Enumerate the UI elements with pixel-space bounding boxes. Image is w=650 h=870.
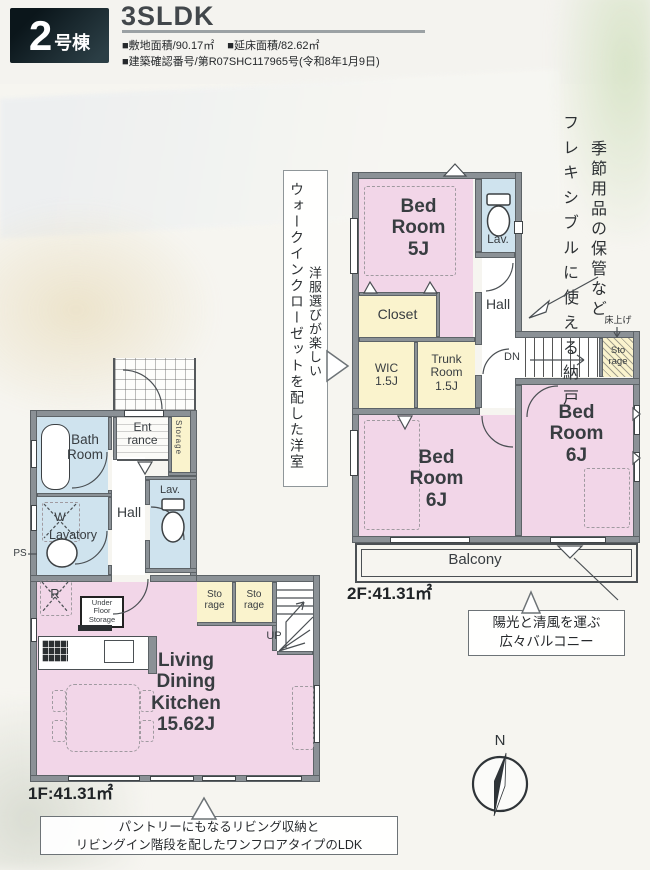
label-dn: DN (500, 351, 524, 363)
ldk-note-box: パントリーにもなるリビング収納と リビングイン階段を配したワンフロアタイプのLD… (40, 816, 398, 855)
room-label-hall-2f: Hall (477, 297, 519, 313)
title-underline (122, 30, 425, 33)
wall (145, 568, 197, 573)
window (202, 776, 236, 781)
wall (475, 375, 482, 408)
1f-area-label: 1F:41.31㎡ (28, 784, 148, 803)
label-up: UP (262, 630, 286, 642)
room-label-storage1: Sto rage (197, 589, 232, 611)
wall (145, 540, 150, 570)
wall (352, 408, 480, 415)
label-washer: W (50, 511, 70, 524)
room-label-trunk: Trunk Room 1.5J (418, 353, 475, 393)
room-label-storage-2f: Sto rage (603, 346, 633, 367)
room-label-wic: WIC 1.5J (359, 362, 414, 389)
label-ps: PS (11, 548, 29, 559)
room-label-hall-1f: Hall (110, 505, 148, 521)
room-label-closet: Closet (361, 307, 434, 323)
wall (475, 252, 515, 258)
wall (145, 476, 197, 480)
compass-icon (473, 753, 527, 816)
wall (197, 622, 277, 626)
wic-note-pointer (327, 351, 348, 381)
2f-area-label: 2F:41.31㎡ (347, 584, 467, 603)
wall (352, 172, 522, 179)
unit-badge: 2 号棟 (10, 8, 109, 63)
room-label-lav-1f: Lav. (152, 484, 188, 496)
wall (145, 480, 150, 505)
compass-north-label: N (490, 733, 510, 750)
porch-edge (194, 358, 196, 410)
wall (515, 172, 522, 338)
wall (190, 410, 197, 582)
wall (359, 292, 440, 296)
desk-outline (584, 468, 630, 528)
wall (436, 292, 440, 337)
window (31, 618, 37, 642)
plan-type-title: 3SLDK (121, 1, 321, 31)
label-balcony: Balcony (420, 552, 530, 569)
room-label-ldk: Living Dining Kitchen 15.62J (135, 650, 237, 735)
window (68, 776, 140, 781)
wall (277, 651, 313, 655)
window (31, 505, 37, 531)
spec-permit-number: ■建築確認番号/第R07SHC117965号(令和8年1月9日) (122, 56, 380, 68)
window (314, 685, 320, 743)
spec-site-area: ■敷地面積/90.17㎡ (122, 40, 214, 52)
spec-line-1: ■敷地面積/90.17㎡ ■延床面積/82.62㎡ (122, 37, 320, 53)
room-label-bedroom6-left: Bed Room 6J (394, 447, 479, 511)
room-label-entrance: Ent rance (119, 421, 166, 448)
wall (633, 331, 640, 543)
window (150, 776, 194, 781)
unit-number: 2 (29, 15, 52, 57)
window (350, 430, 358, 476)
dining-table (66, 684, 140, 752)
wall (190, 575, 320, 582)
floorplan-flyer: { "header": { "badge_number": "2", "badg… (0, 0, 650, 861)
2f-hall (482, 258, 515, 408)
wall (515, 385, 522, 536)
window (246, 776, 302, 781)
stove (42, 640, 68, 662)
porch-edge (113, 358, 115, 410)
label-under-floor-storage: Under Floor Storage (80, 599, 124, 624)
wall (168, 417, 172, 472)
storage-note-arrowhead (529, 301, 549, 318)
storage-note-line2: フレキシブルに使える納戸 (556, 114, 580, 414)
room-label-entrance-storage: Storage (174, 420, 183, 455)
wall (108, 565, 112, 575)
unit-suffix: 号棟 (54, 29, 90, 55)
room-label-bath: Bath Room (55, 432, 115, 462)
window (31, 440, 37, 468)
storage-note-line1: 季節用品の保管など (584, 140, 608, 320)
room-label-storage2: Sto rage (236, 589, 272, 611)
window (634, 405, 640, 435)
wic-note-line2: ウォークインクローゼットを配した洋室 (287, 182, 307, 470)
label-fridge: R (46, 587, 64, 602)
window (634, 452, 640, 482)
range-hood (78, 625, 112, 631)
room-label-lavatory: Lavatory (39, 528, 107, 542)
wall (150, 575, 197, 582)
entrance-door (124, 410, 164, 417)
chair (52, 690, 66, 712)
room-label-lav-2f: Lav. (479, 233, 517, 246)
wall (37, 493, 112, 497)
chair (52, 720, 66, 742)
spec-floor-area: ■延床面積/82.62㎡ (227, 40, 319, 52)
sofa (292, 686, 314, 750)
balcony-note-box: 陽光と清風を運ぶ 広々バルコニー (468, 610, 625, 656)
entrance-porch (115, 358, 194, 410)
kitchen-sink (104, 640, 134, 663)
room-label-bedroom5: Bed Room 5J (376, 196, 461, 260)
spec-line-2: ■建築確認番号/第R07SHC117965号(令和8年1月9日) (122, 53, 380, 69)
window (350, 218, 358, 274)
wall (30, 410, 197, 417)
entrance-step-line (117, 459, 168, 461)
wall (313, 575, 320, 782)
wic-note-line1: 洋服選びが楽しい (305, 266, 324, 378)
